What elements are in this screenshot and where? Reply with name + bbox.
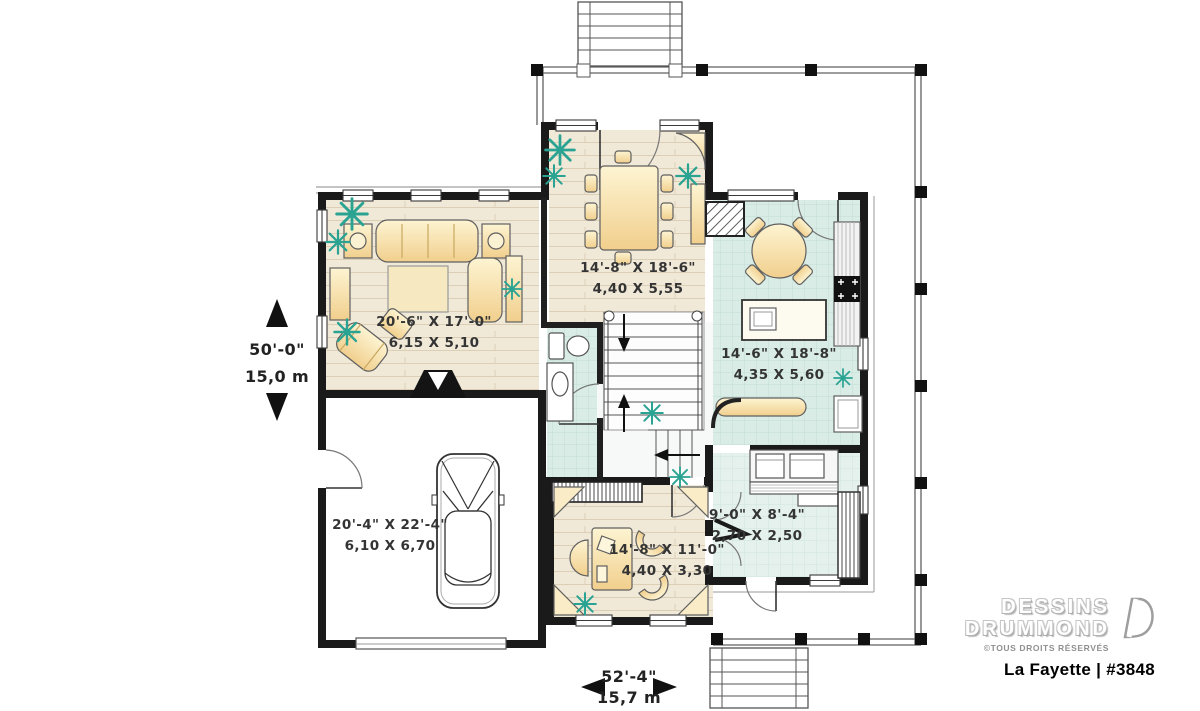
dining-table [600, 166, 658, 250]
metric-dimension: 4,40 X 5,55 [580, 279, 696, 300]
imperial-dimension: 9'-0" X 8'-4" [709, 505, 805, 526]
porch-stairs-bottom [710, 648, 808, 708]
metric-dimension: 4,40 X 3,30 [609, 561, 725, 582]
dim-up-arrow-icon [266, 299, 288, 327]
plant-icon [546, 136, 575, 165]
chair [585, 231, 597, 248]
chair [661, 231, 673, 248]
entry-stairs-top [578, 2, 682, 66]
plant-icon [574, 593, 596, 615]
overall-width-dimension: 50'-0" 15,0 m [217, 336, 337, 390]
imperial-dimension: 20'-6" X 17'-0" [376, 312, 492, 333]
plant-icon [502, 279, 522, 299]
brand-name-line1: DESSINS [965, 596, 1110, 618]
garage-dimensions-label: 20'-4" X 22'-4" 6,10 X 6,70 [332, 515, 448, 557]
floor-plan-page: 20'-6" X 17'-0" 6,15 X 5,10 14'-8" X 18'… [0, 0, 1200, 711]
sink [552, 372, 568, 396]
imperial-dimension: 14'-8" X 18'-6" [580, 258, 696, 279]
garage-door [356, 638, 506, 649]
stove [834, 276, 860, 302]
dim-down-arrow-icon [266, 393, 288, 421]
lamp [488, 233, 504, 249]
depth-metric: 15,7 m [569, 687, 689, 708]
chair [615, 151, 631, 163]
plant-icon [337, 199, 368, 230]
kitchen-dimensions-label: 14'-6" X 18'-8" 4,35 X 5,60 [721, 344, 837, 386]
rug [388, 266, 448, 312]
plant-icon [543, 165, 565, 187]
office-dimensions-label: 14'-8" X 11'-0" 4,40 X 3,30 [609, 540, 725, 582]
living-room-dimensions-label: 20'-6" X 17'-0" 6,15 X 5,10 [376, 312, 492, 354]
imperial-dimension: 20'-4" X 22'-4" [332, 515, 448, 536]
chair [585, 203, 597, 220]
chair [661, 203, 673, 220]
lamp [350, 233, 366, 249]
pantry [706, 202, 744, 236]
imperial-dimension: 14'-6" X 18'-8" [721, 344, 837, 365]
metric-dimension: 6,15 X 5,10 [376, 333, 492, 354]
plant-icon [326, 230, 349, 253]
sideboard [691, 184, 705, 244]
brand-block: DESSINS DRUMMOND ©TOUS DROITS RÉSERVÉS L… [965, 595, 1155, 680]
closet [838, 492, 860, 578]
depth-imperial: 52'-4" [569, 666, 689, 687]
dining-room-dimensions-label: 14'-8" X 18'-6" 4,40 X 5,55 [580, 258, 696, 300]
width-metric: 15,0 m [217, 363, 337, 390]
mudroom-porch-door [746, 581, 776, 611]
plant-icon [334, 319, 359, 344]
brand-name-line2: DRUMMOND [965, 618, 1110, 640]
plant-icon [676, 164, 699, 187]
metric-dimension: 2,70 X 2,50 [709, 526, 805, 547]
plan-title: La Fayette | #3848 [965, 660, 1155, 680]
plant-icon [670, 467, 690, 487]
copyright-notice: ©TOUS DROITS RÉSERVÉS [965, 643, 1109, 653]
plant-icon [641, 402, 663, 424]
chair [661, 175, 673, 192]
toilet-bowl [567, 336, 589, 356]
toilet-tank [549, 333, 564, 359]
width-imperial: 50'-0" [217, 336, 337, 363]
overall-depth-dimension: 52'-4" 15,7 m [569, 666, 689, 708]
drummond-d-logo-icon [1117, 595, 1155, 641]
metric-dimension: 6,10 X 6,70 [332, 536, 448, 557]
cabinet [330, 268, 350, 320]
metric-dimension: 4,35 X 5,60 [721, 365, 837, 386]
mudroom-dimensions-label: 9'-0" X 8'-4" 2,70 X 2,50 [709, 505, 805, 547]
chair [585, 175, 597, 192]
sofa [376, 220, 478, 262]
washer [756, 454, 784, 478]
kitchen-table [752, 224, 806, 278]
dryer [790, 454, 824, 478]
imperial-dimension: 14'-8" X 11'-0" [609, 540, 725, 561]
brand-logo: DESSINS DRUMMOND [965, 595, 1155, 641]
